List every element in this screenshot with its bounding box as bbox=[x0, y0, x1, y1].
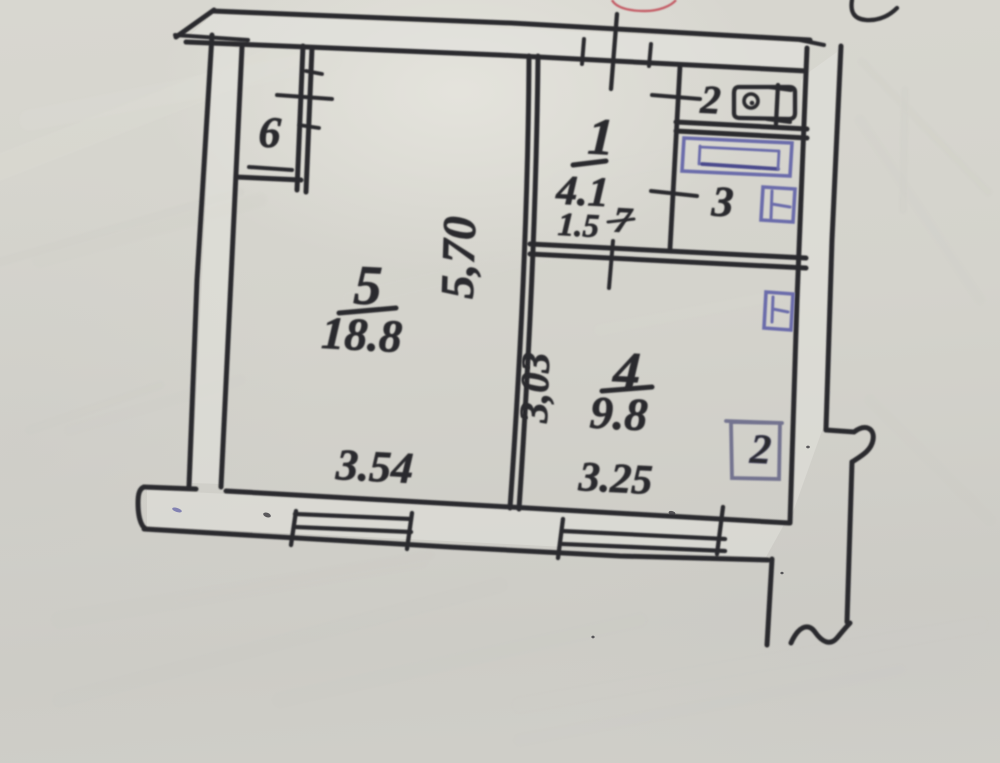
svg-text:1.5: 1.5 bbox=[557, 207, 600, 245]
svg-text:5,70: 5,70 bbox=[432, 215, 487, 299]
svg-text:3: 3 bbox=[710, 178, 735, 226]
svg-text:7: 7 bbox=[613, 200, 635, 241]
svg-text:6: 6 bbox=[257, 107, 282, 157]
svg-text:3.25: 3.25 bbox=[577, 454, 654, 504]
svg-text:18.8: 18.8 bbox=[320, 307, 403, 362]
svg-text:3.54: 3.54 bbox=[334, 440, 414, 493]
svg-text:9.8: 9.8 bbox=[589, 387, 649, 441]
svg-text:2: 2 bbox=[699, 76, 722, 122]
svg-text:3,03: 3,03 bbox=[511, 352, 558, 425]
svg-text:1: 1 bbox=[586, 108, 615, 166]
svg-text:2: 2 bbox=[748, 426, 772, 473]
